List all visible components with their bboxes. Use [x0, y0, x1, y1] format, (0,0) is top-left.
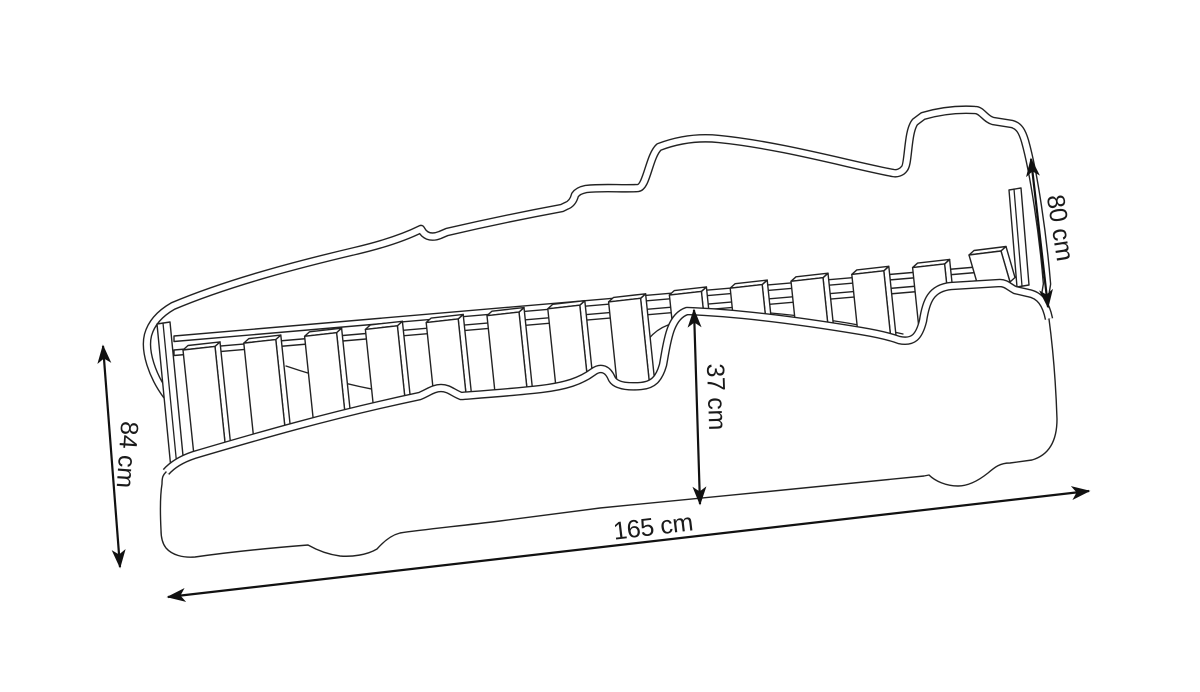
dimension-label-height: 84 cm: [111, 420, 144, 488]
near-side-panel: [160, 283, 1057, 557]
diagram-canvas: 84 cm 80 cm 37 cm 165 cm: [0, 0, 1200, 692]
dimension-label-side-height: 37 cm: [701, 363, 731, 431]
car-bed-dimension-diagram: 84 cm 80 cm 37 cm 165 cm: [0, 0, 1200, 692]
end-board-left: [157, 322, 184, 469]
dimension-label-length: 165 cm: [612, 508, 695, 545]
